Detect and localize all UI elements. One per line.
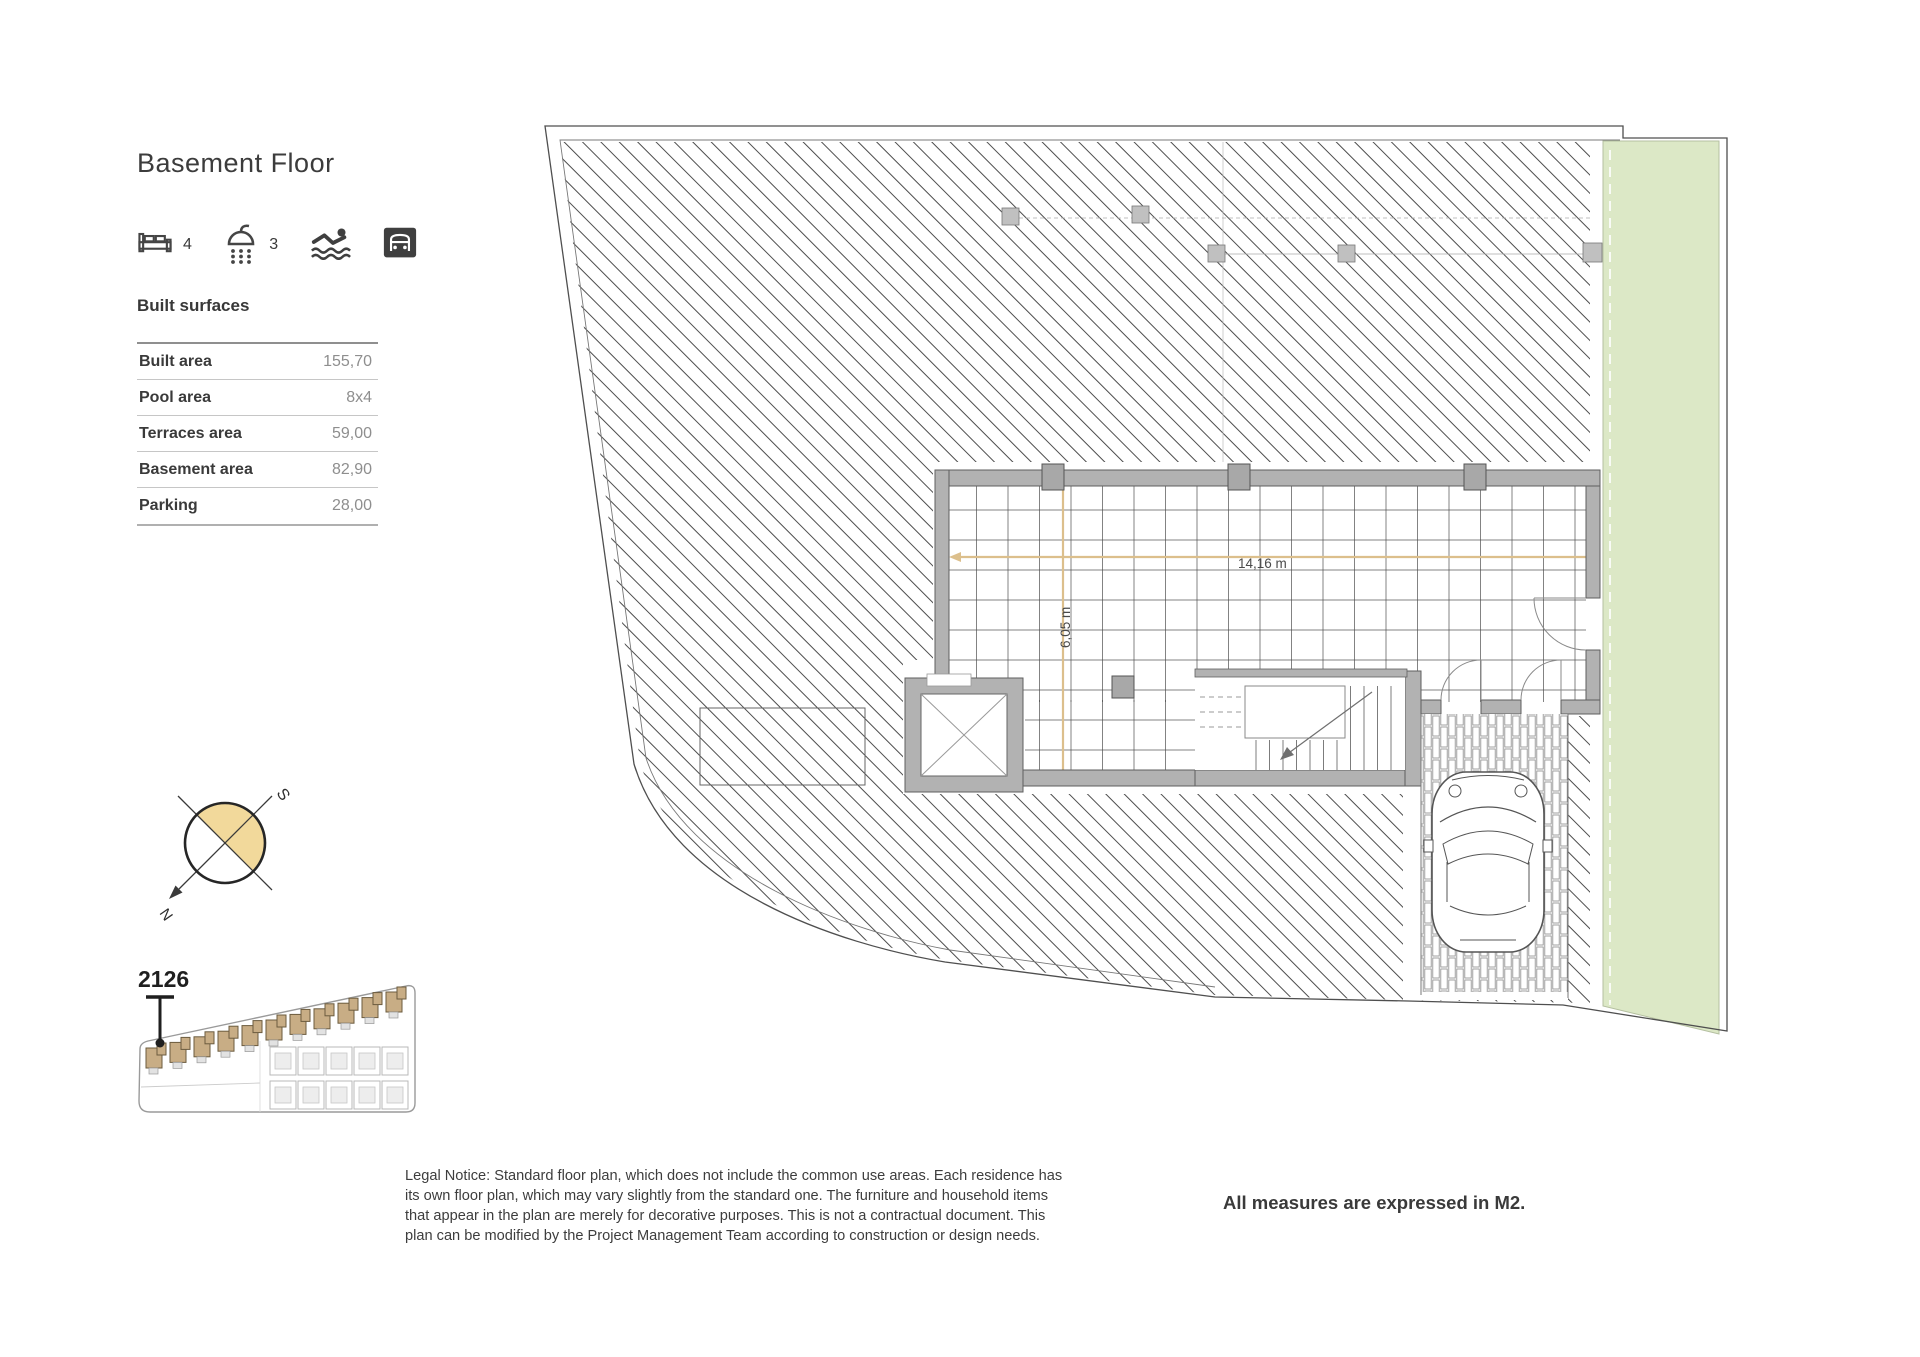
stair-treads [1345,686,1400,770]
column [1042,464,1064,490]
bedrooms-count: 4 [183,236,192,254]
stair-treads [1252,740,1345,770]
row-label: Built area [139,353,212,371]
compass-rose: S N [145,770,305,930]
column-marker [1583,243,1602,262]
table-row: Built area 155,70 [137,344,378,380]
row-value: 82,90 [332,461,372,479]
depth-dimension-label: 6,05 m [1058,607,1073,648]
amenities-row: 4 3 [137,222,417,268]
tile-grid [1025,700,1195,772]
floor-plan: 14,16 m 6,05 m [500,90,1770,1080]
column [1112,676,1134,698]
pool-swimmer-icon [310,226,352,265]
table-row: Terraces area 59,00 [137,416,378,452]
shower-icon [223,222,259,269]
elevator-shaft [905,674,1023,792]
column-marker [1208,245,1225,262]
legal-notice: Legal Notice: Standard floor plan, which… [405,1166,1073,1246]
row-label: Basement area [139,461,253,479]
car-mirror [1543,840,1552,852]
row-value: 28,00 [332,497,372,515]
row-value: 155,70 [323,353,372,371]
row-label: Pool area [139,389,211,407]
measures-note: All measures are expressed in M2. [1223,1192,1525,1214]
garage-icon [383,226,417,265]
compass-south-label: S [273,786,293,804]
page-title: Basement Floor [137,148,335,179]
table-row: Parking 28,00 [137,488,378,524]
bathrooms-count: 3 [269,236,278,254]
column [1228,464,1250,490]
site-plan-thumbnail: 2126 [110,955,440,1155]
row-value: 8x4 [346,389,372,407]
brochure-page: Basement Floor 4 [0,0,1920,1357]
column-marker [1002,208,1019,225]
car-mirror [1424,840,1433,852]
built-surfaces-table: Built area 155,70 Pool area 8x4 Terraces… [137,342,378,526]
column-marker [1132,206,1149,223]
row-label: Terraces area [139,425,242,443]
compass-north-label: N [156,906,176,925]
staircase [1195,669,1407,770]
row-label: Parking [139,497,198,515]
row-value: 59,00 [332,425,372,443]
built-surfaces-heading: Built surfaces [137,296,249,316]
table-row: Pool area 8x4 [137,380,378,416]
garden-green-area [1603,141,1719,1034]
unit-number-label: 2126 [138,966,189,992]
column [1464,464,1486,490]
table-row: Basement area 82,90 [137,452,378,488]
bed-icon [137,229,173,262]
stair-landing [1245,686,1345,738]
column-marker [1338,245,1355,262]
width-dimension-label: 14,16 m [1238,556,1287,571]
car [1424,772,1552,952]
